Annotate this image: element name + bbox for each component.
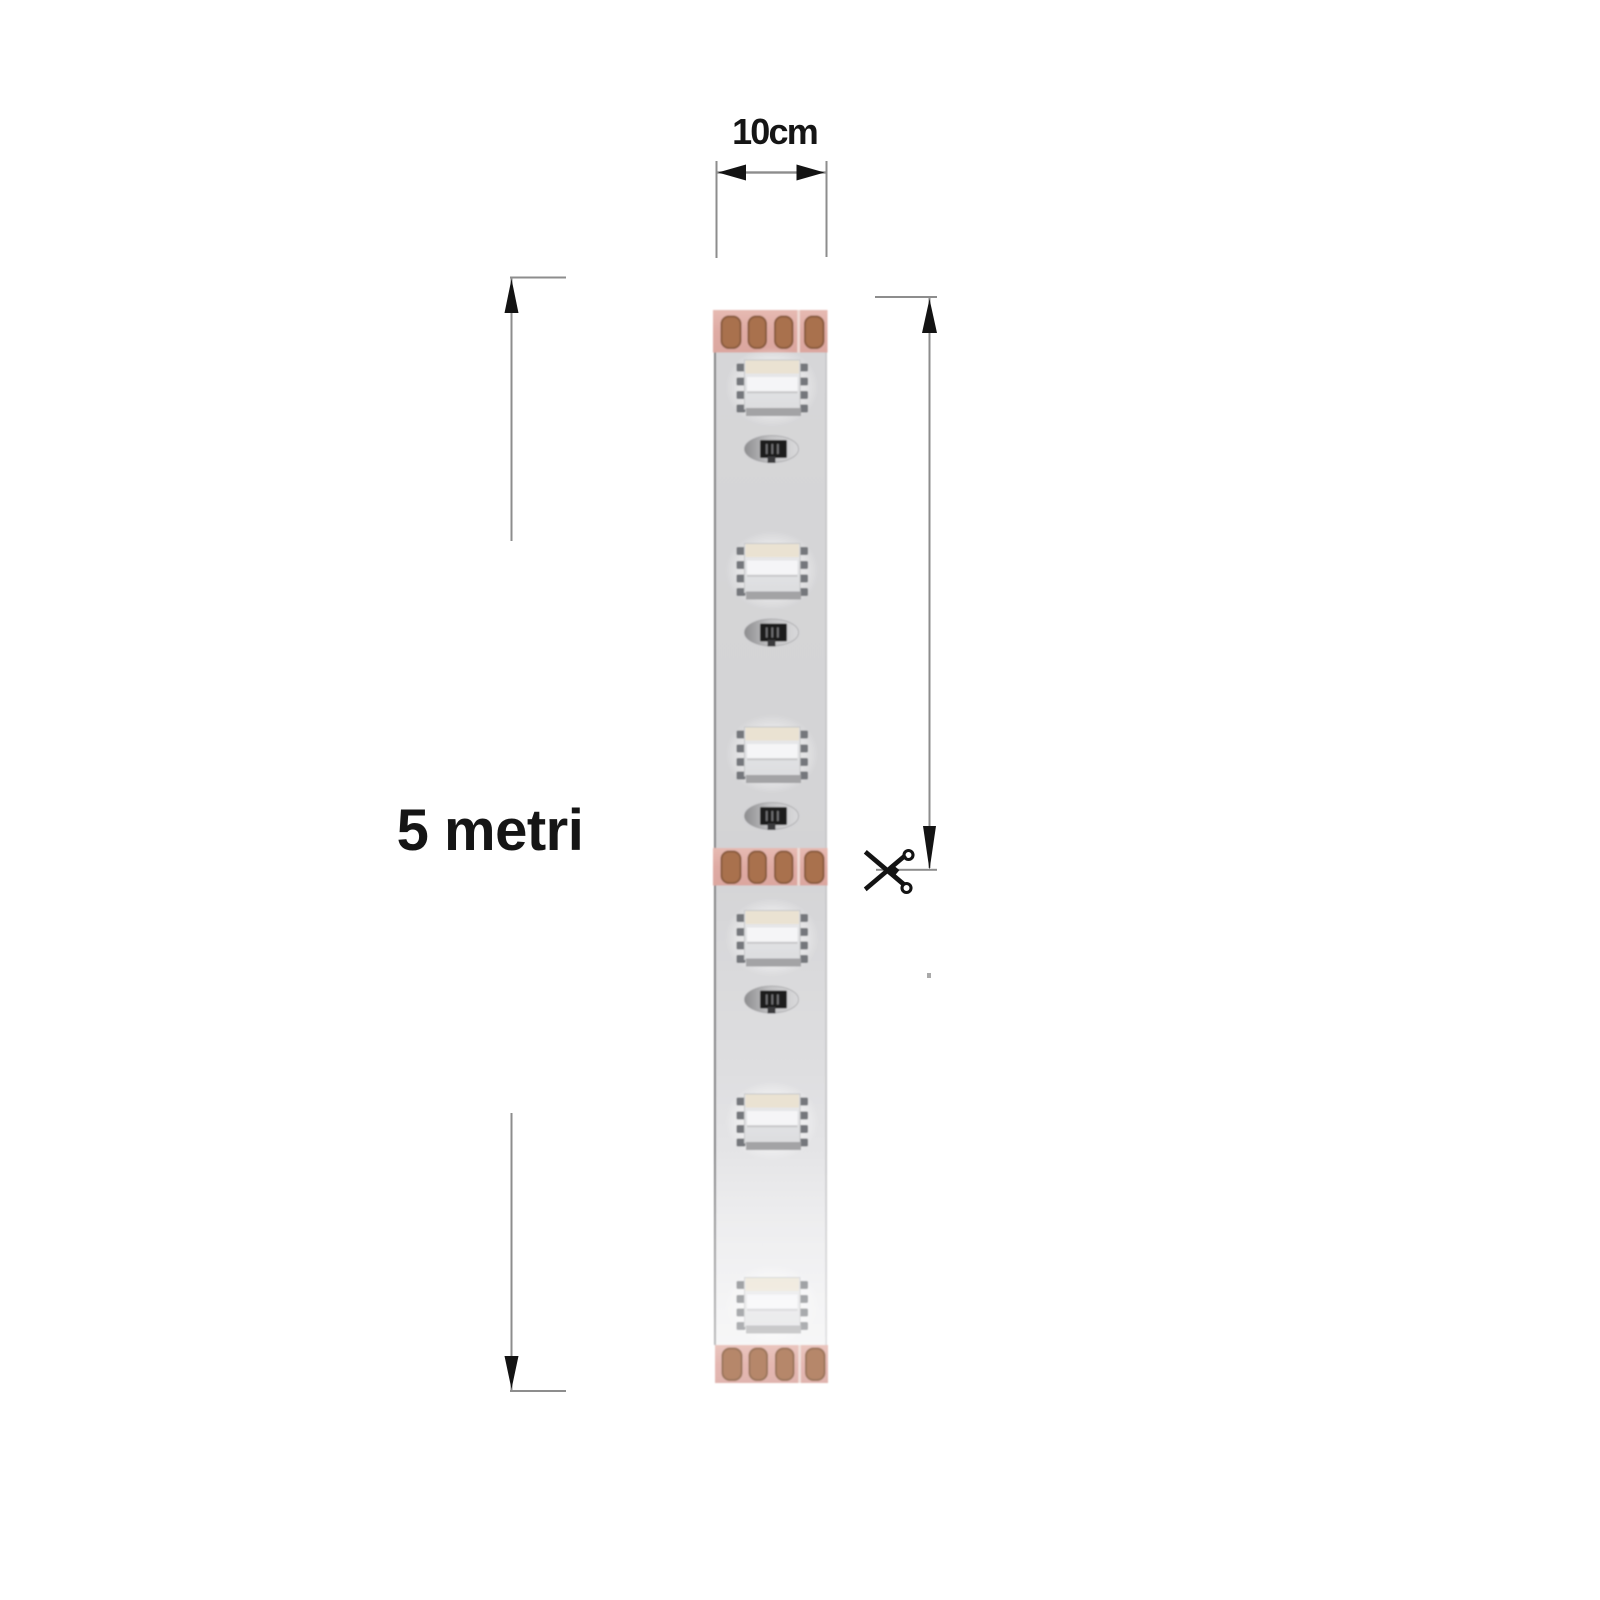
svg-text:10cm: 10cm bbox=[732, 111, 817, 152]
svg-text:5 metri: 5 metri bbox=[397, 798, 584, 863]
